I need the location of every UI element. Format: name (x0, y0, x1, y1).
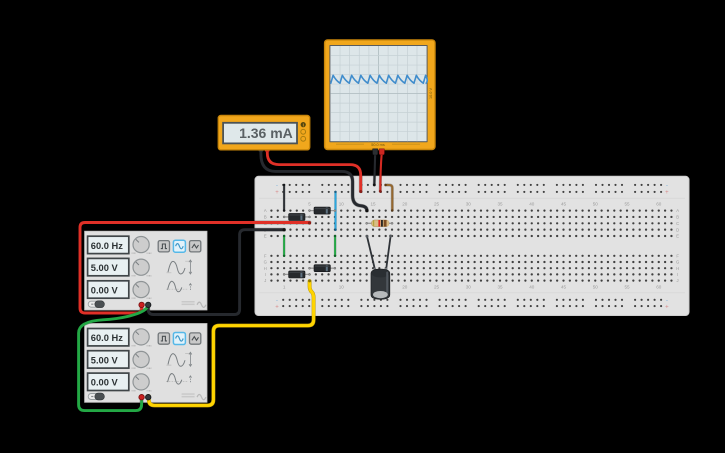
svg-text:10: 10 (339, 284, 345, 289)
svg-text:60: 60 (656, 202, 662, 207)
svg-text:+: + (665, 190, 669, 196)
svg-text:min: min (132, 343, 137, 347)
svg-text:E: E (676, 234, 679, 239)
svg-text:5.00 V: 5.00 V (91, 263, 119, 273)
svg-text:20: 20 (402, 202, 408, 207)
svg-text:B: B (264, 215, 267, 220)
svg-text:A: A (676, 208, 679, 213)
svg-text:30: 30 (466, 284, 472, 289)
svg-text:J: J (264, 278, 266, 283)
svg-text:-: - (666, 297, 668, 304)
svg-text:40: 40 (529, 202, 535, 207)
svg-text:50.0 ms: 50.0 ms (371, 143, 385, 147)
svg-text:50: 50 (593, 284, 599, 289)
svg-text:45: 45 (561, 284, 567, 289)
svg-text:-: - (276, 182, 278, 189)
svg-text:60.0 Hz: 60.0 Hz (91, 333, 123, 343)
svg-text:55: 55 (624, 202, 630, 207)
svg-text:max: max (147, 389, 153, 392)
svg-text:min: min (132, 274, 137, 278)
svg-text:min: min (132, 388, 137, 392)
svg-text:I: I (265, 272, 266, 277)
svg-text:30: 30 (466, 202, 472, 207)
svg-text:25: 25 (434, 202, 440, 207)
svg-text:G: G (264, 260, 267, 265)
svg-text:35: 35 (497, 284, 503, 289)
svg-text:min: min (132, 366, 137, 370)
svg-text:F: F (676, 253, 679, 258)
svg-text:max: max (147, 297, 153, 300)
svg-text:max: max (147, 275, 153, 278)
svg-text:C: C (676, 221, 679, 226)
svg-text:+: + (275, 190, 279, 196)
svg-text:50: 50 (593, 202, 599, 207)
svg-text:45: 45 (561, 202, 567, 207)
svg-text:i: i (303, 122, 304, 127)
svg-text:1.36 mA: 1.36 mA (239, 125, 293, 141)
svg-text:max: max (147, 367, 153, 370)
svg-text:55: 55 (624, 284, 630, 289)
svg-text:I: I (677, 272, 678, 277)
svg-text:H: H (264, 266, 267, 271)
svg-text:35: 35 (497, 202, 503, 207)
svg-text:F: F (264, 253, 267, 258)
svg-text:+: + (275, 304, 279, 310)
svg-text:-: - (276, 297, 278, 304)
svg-text:10: 10 (339, 202, 345, 207)
svg-text:5: 5 (308, 202, 311, 207)
svg-text:min: min (132, 296, 137, 300)
svg-text:-: - (666, 182, 668, 189)
svg-text:1: 1 (283, 284, 286, 289)
svg-text:max: max (147, 344, 153, 347)
svg-text:D: D (676, 227, 679, 232)
svg-text:max: max (147, 252, 153, 255)
svg-text:+: + (665, 304, 669, 310)
svg-text:E: E (264, 234, 267, 239)
svg-text:H: H (676, 266, 679, 271)
svg-text:15: 15 (370, 202, 376, 207)
svg-text:60.0 Hz: 60.0 Hz (91, 241, 123, 251)
svg-text:B: B (676, 215, 679, 220)
svg-text:60: 60 (656, 284, 662, 289)
svg-text:G: G (676, 260, 679, 265)
svg-text:25: 25 (434, 284, 440, 289)
svg-text:20: 20 (402, 284, 408, 289)
svg-text:5.00 V: 5.00 V (91, 355, 119, 365)
svg-text:0.00 V: 0.00 V (91, 285, 119, 295)
svg-text:A: A (264, 208, 267, 213)
svg-text:J: J (677, 278, 679, 283)
svg-text:40: 40 (529, 284, 535, 289)
svg-text:min: min (132, 251, 137, 255)
svg-text:10.0 V: 10.0 V (429, 88, 433, 99)
svg-text:0.00 V: 0.00 V (91, 378, 119, 388)
